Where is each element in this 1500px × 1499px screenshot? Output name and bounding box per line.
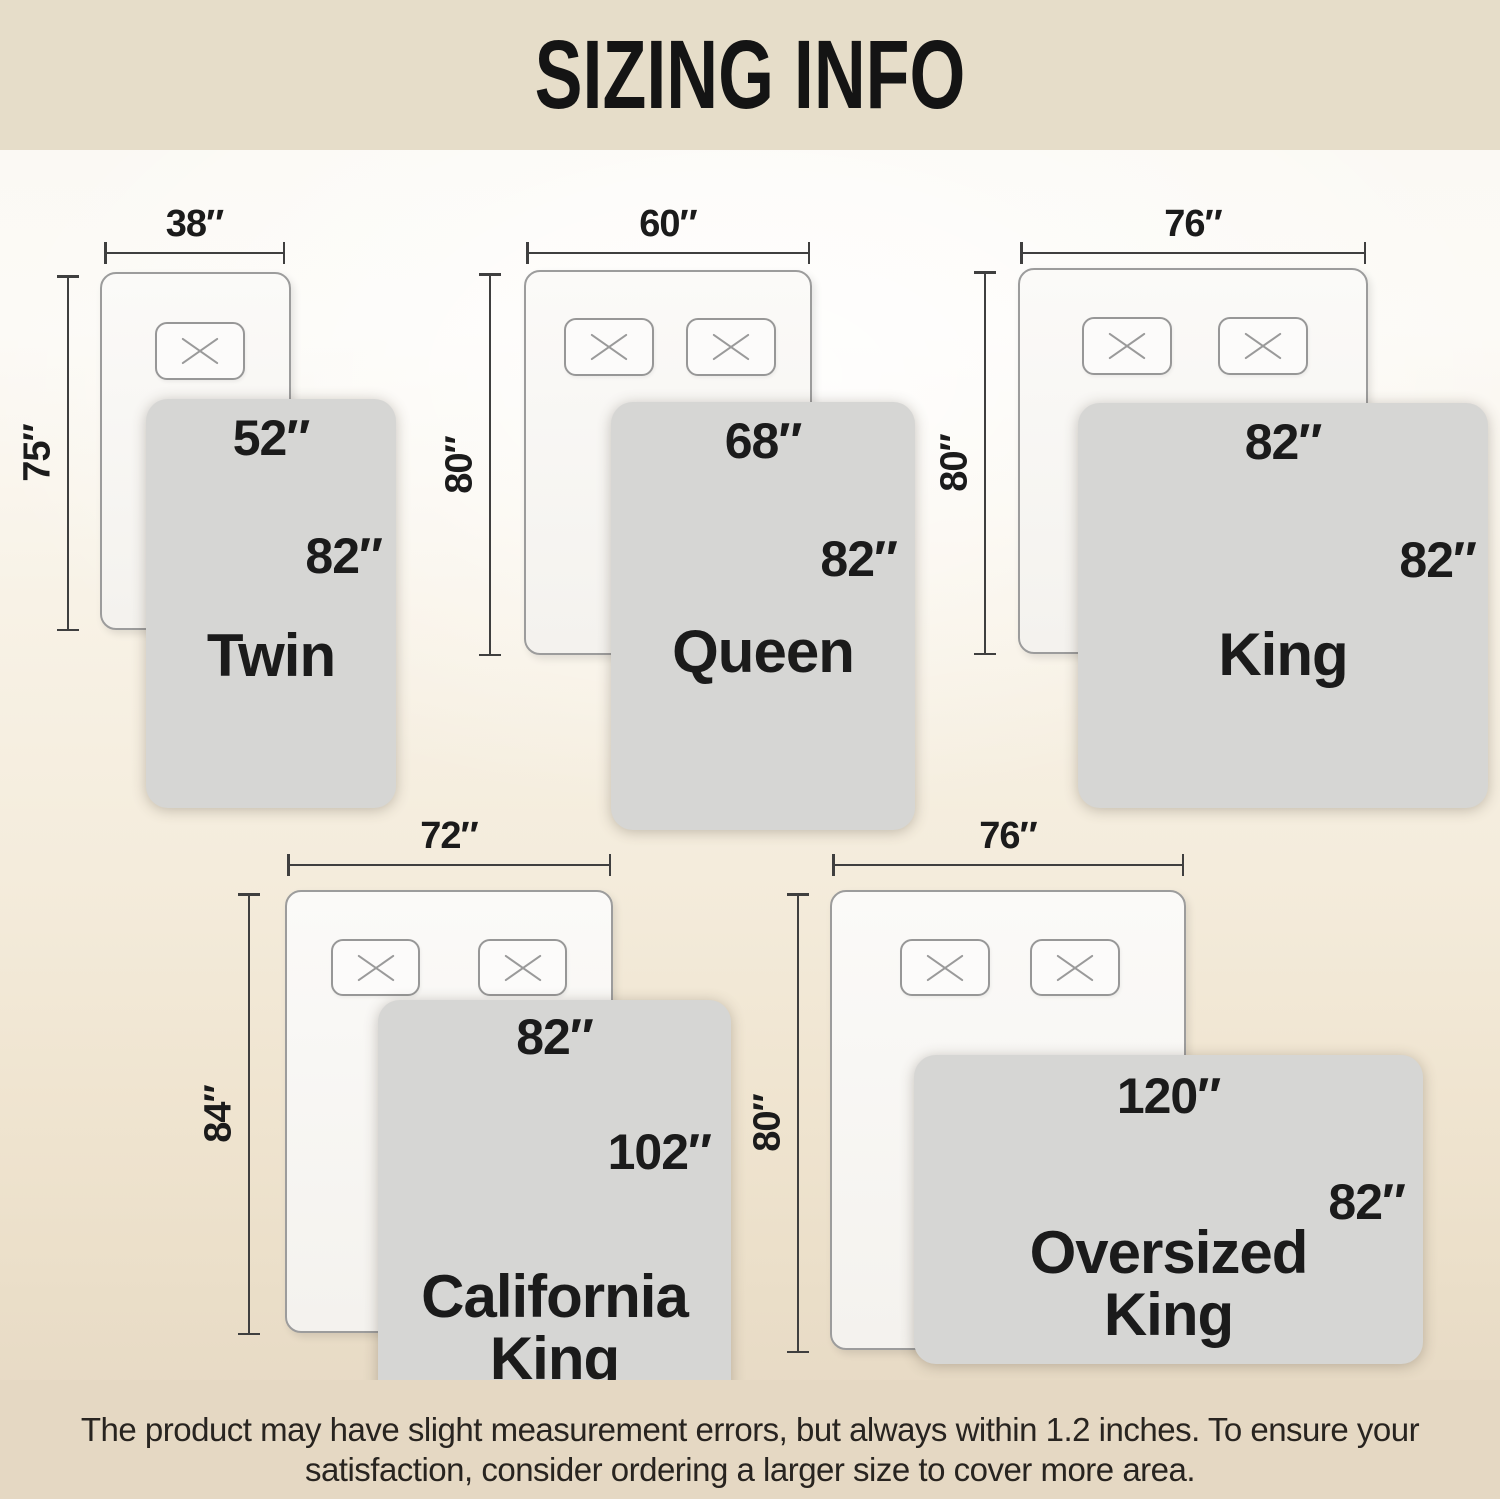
pillow <box>331 939 420 996</box>
pillow <box>564 318 654 376</box>
page-title: SIZING INFO <box>535 19 966 131</box>
blanket: 120″ 82″ Oversized King <box>914 1055 1423 1364</box>
size-name-line: King <box>1078 624 1488 686</box>
blanket: 68″ 82″ Queen <box>611 402 915 830</box>
pillow <box>478 939 567 996</box>
blanket-length-label: 102″ <box>608 1123 711 1181</box>
disclaimer-line-1: The product may have slight measurement … <box>0 1410 1500 1450</box>
length-dimension-line: 84″ <box>248 894 250 1334</box>
size-name-line: King <box>914 1284 1423 1346</box>
bed-width-label: 38″ <box>166 203 223 246</box>
width-dimension-line: 76″ <box>1020 252 1366 254</box>
length-dimension-line: 75″ <box>67 276 69 630</box>
disclaimer-line-2: satisfaction, consider ordering a larger… <box>0 1450 1500 1490</box>
width-dimension-line: 60″ <box>526 252 810 254</box>
blanket-width-label: 82″ <box>516 1008 593 1066</box>
header-banner: SIZING INFO <box>0 0 1500 150</box>
bed-width-label: 60″ <box>639 203 696 246</box>
size-name: Twin <box>146 625 396 687</box>
size-name: Oversized King <box>914 1222 1423 1346</box>
pillow <box>1218 317 1308 375</box>
blanket-width-label: 120″ <box>1117 1067 1220 1125</box>
blanket-width-label: 82″ <box>1245 413 1322 471</box>
size-name-line: Oversized <box>914 1222 1423 1284</box>
bed-length-label: 75″ <box>17 424 60 481</box>
blanket: 52″ 82″ Twin <box>146 399 396 808</box>
size-name: King <box>1078 624 1488 686</box>
blanket: 82″ 82″ King <box>1078 403 1488 808</box>
blanket: 82″ 102″ California King <box>378 1000 731 1424</box>
pillow <box>686 318 776 376</box>
width-dimension-line: 76″ <box>832 864 1184 866</box>
bed-width-label: 76″ <box>1164 203 1221 246</box>
length-dimension-line: 80″ <box>797 894 799 1352</box>
width-dimension-line: 38″ <box>104 252 285 254</box>
sizing-infographic: SIZING INFO 38″ 75″ 52″ 82″ Twin <box>0 0 1500 1499</box>
blanket-length-label: 82″ <box>820 530 897 588</box>
bed-length-label: 84″ <box>198 1085 241 1142</box>
bed-width-label: 72″ <box>420 815 477 858</box>
size-name: California King <box>378 1266 731 1390</box>
blanket-width-label: 52″ <box>233 409 310 467</box>
pillow <box>900 939 990 996</box>
pillow <box>1082 317 1172 375</box>
blanket-width-label: 68″ <box>725 412 802 470</box>
size-name-line: California <box>378 1266 731 1328</box>
size-name: Queen <box>611 621 915 683</box>
width-dimension-line: 72″ <box>287 864 611 866</box>
length-dimension-line: 80″ <box>489 274 491 655</box>
bed-length-label: 80″ <box>934 434 977 491</box>
bed-length-label: 80″ <box>747 1094 790 1151</box>
pillow <box>1030 939 1120 996</box>
pillow <box>155 322 245 380</box>
blanket-length-label: 82″ <box>305 527 382 585</box>
footer-banner: The product may have slight measurement … <box>0 1380 1500 1499</box>
blanket-length-label: 82″ <box>1399 531 1476 589</box>
bed-width-label: 76″ <box>979 815 1036 858</box>
size-name-line: Twin <box>146 625 396 687</box>
bed-length-label: 80″ <box>439 436 482 493</box>
size-name-line: Queen <box>611 621 915 683</box>
length-dimension-line: 80″ <box>984 272 986 654</box>
